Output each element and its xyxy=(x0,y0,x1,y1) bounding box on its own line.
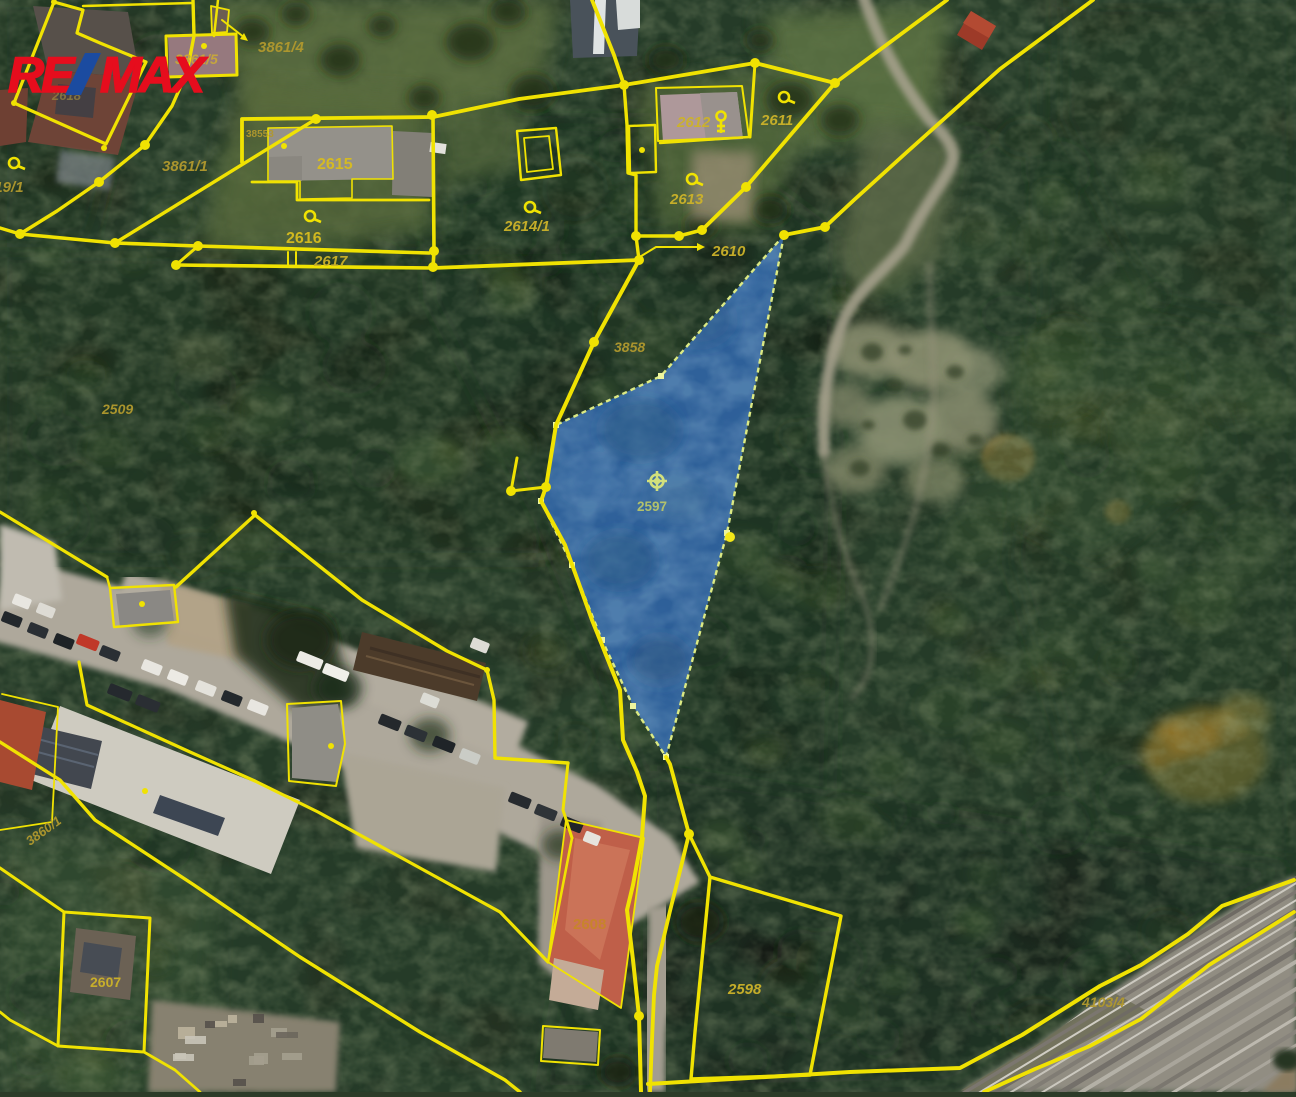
svg-text:2597: 2597 xyxy=(637,499,667,514)
svg-text:3858: 3858 xyxy=(614,339,645,355)
svg-text:2614/1: 2614/1 xyxy=(503,218,550,235)
svg-text:2607: 2607 xyxy=(90,974,121,990)
svg-text:2598: 2598 xyxy=(727,981,762,998)
svg-text:4103/4: 4103/4 xyxy=(1081,994,1125,1010)
svg-text:2617: 2617 xyxy=(313,253,348,270)
svg-text:2616: 2616 xyxy=(286,230,322,247)
svg-text:2615: 2615 xyxy=(317,156,353,173)
svg-text:MAX: MAX xyxy=(100,47,208,103)
svg-text:2613: 2613 xyxy=(669,191,704,208)
svg-text:3861/1: 3861/1 xyxy=(162,158,208,175)
svg-text:2612: 2612 xyxy=(676,114,711,131)
svg-text:3861/4: 3861/4 xyxy=(258,39,305,56)
svg-text:2611: 2611 xyxy=(760,112,793,129)
svg-text:2610: 2610 xyxy=(711,243,746,260)
svg-text:38553: 38553 xyxy=(246,129,274,140)
svg-text:2509: 2509 xyxy=(101,401,133,417)
svg-text:619/1: 619/1 xyxy=(0,179,24,196)
svg-text:2608: 2608 xyxy=(573,916,606,933)
